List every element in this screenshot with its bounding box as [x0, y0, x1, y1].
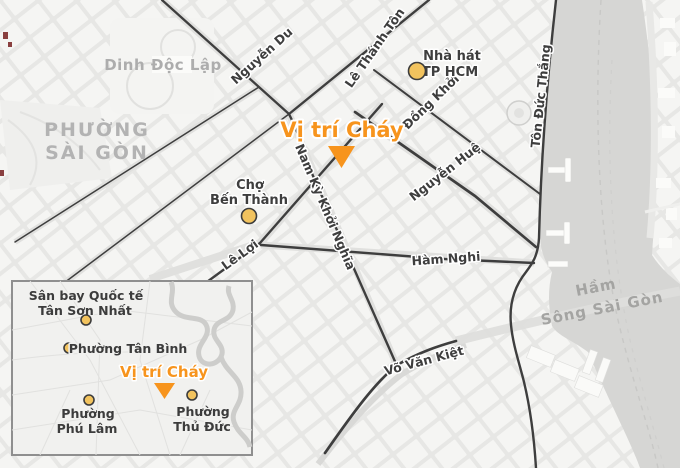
inset-label-thu-duc-1: Phường [176, 404, 229, 419]
inset-label-airport-1: Sân bay Quốc tế [29, 288, 144, 303]
poi-label-ben-thanh: Bến Thành [210, 193, 288, 208]
area-label-phuong-saigon-1: PHƯỜNG [44, 117, 150, 141]
fire-label-main: Vị trí Cháy [280, 118, 404, 142]
cho-ben-thanh-marker [242, 209, 257, 224]
inset-label-phu-lam-1: Phường [61, 406, 114, 421]
inset-label-phu-lam-2: Phú Lâm [57, 421, 118, 436]
inset-poi-tan-binh: Phường Tân Bình [64, 341, 187, 356]
area-label-phuong-saigon-2: SÀI GÒN [45, 140, 149, 164]
poi-label-cho: Chợ [236, 178, 265, 193]
inset-map: Sân bay Quốc tế Tân Sơn Nhất Phường Tân … [12, 281, 252, 455]
inset-label-thu-duc-2: Thủ Đức [173, 419, 230, 434]
inset-label-tan-binh: Phường Tân Bình [69, 341, 188, 356]
inset-thu-duc-marker [187, 390, 197, 400]
nha-hat-marker [409, 63, 426, 80]
poi-label-nha-hat: Nhà hát [423, 49, 481, 64]
map-canvas: Dinh Độc Lập PHƯỜNG SÀI GÒN Hầm Sông Sài… [0, 0, 680, 468]
me-linh-roundabout [507, 101, 531, 125]
fire-label-inset: Vị trí Cháy [120, 363, 208, 381]
poi-label-tp-hcm: TP HCM [422, 65, 478, 80]
city-map: Dinh Độc Lập PHƯỜNG SÀI GÒN Hầm Sông Sài… [0, 0, 680, 468]
inset-airport-marker [81, 315, 91, 325]
area-label-dinh-doc-lap: Dinh Độc Lập [104, 56, 222, 74]
inset-phu-lam-marker [84, 395, 94, 405]
